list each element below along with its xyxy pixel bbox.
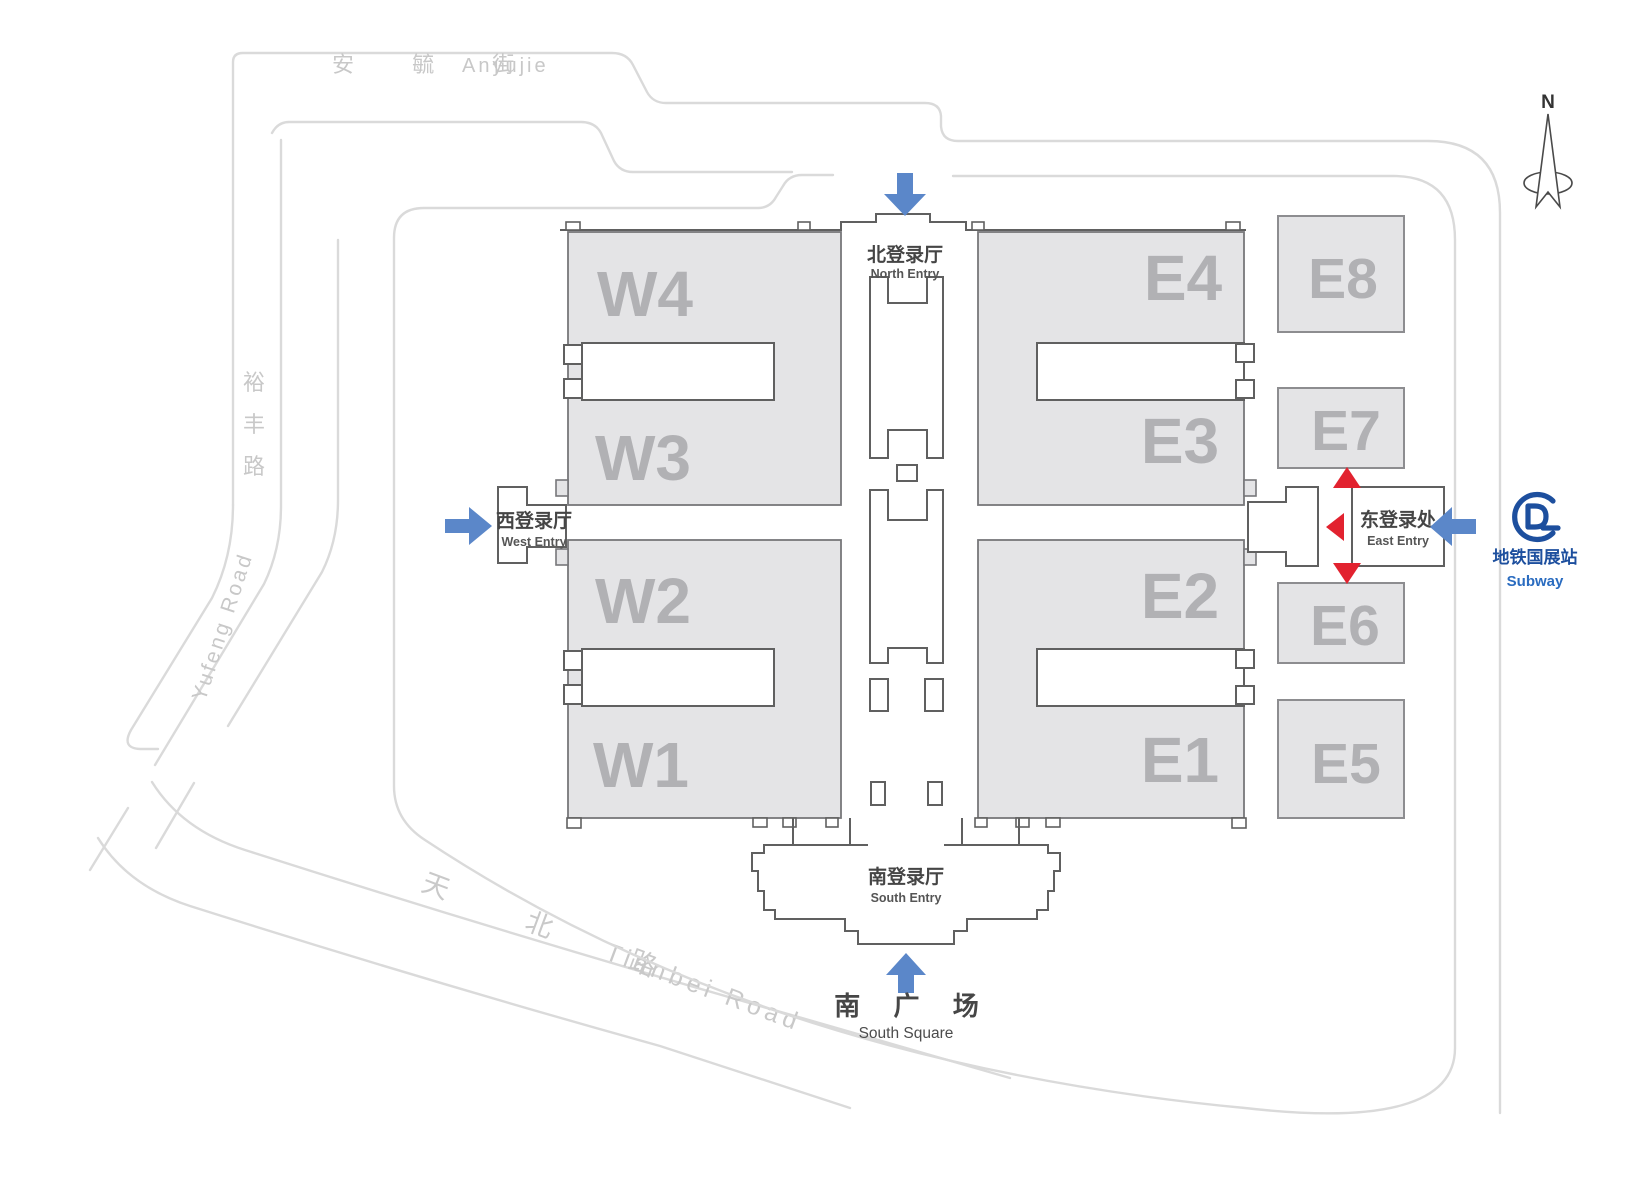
corridor-pillar bbox=[928, 782, 942, 805]
hall-block-w2-w1: W2 W1 bbox=[564, 540, 841, 818]
facade-detail bbox=[783, 818, 796, 827]
central-corridor bbox=[870, 277, 943, 805]
road-label-yufeng-zh2: 丰 bbox=[243, 412, 291, 437]
hall-label-e4: E4 bbox=[1144, 242, 1223, 314]
south-square-arrow-icon bbox=[886, 953, 926, 993]
facade-detail bbox=[566, 222, 580, 230]
west-entry-label-zh: 西登录厅 bbox=[496, 509, 572, 532]
red-arrow-down-icon bbox=[1333, 563, 1361, 584]
hall-label-w1: W1 bbox=[593, 729, 689, 801]
site-map: 安 毓 街 Anyujie 裕 丰 路 Yufeng Road 天 北 路 Ti… bbox=[0, 0, 1643, 1181]
hall-block-e2-e1: E2 E1 bbox=[978, 540, 1254, 818]
red-arrow-left-icon bbox=[1326, 513, 1344, 541]
corridor-structure-south bbox=[870, 490, 943, 663]
hall-label-w4: W4 bbox=[597, 258, 693, 330]
hall-e6: E6 bbox=[1278, 583, 1404, 663]
east-connector-building bbox=[1248, 487, 1318, 566]
facade-detail bbox=[1016, 818, 1029, 827]
south-entry: 南登录厅 South Entry bbox=[752, 818, 1060, 944]
compass: N bbox=[1524, 92, 1572, 207]
east-entry: 东登录处 East Entry bbox=[1248, 487, 1444, 566]
hall-label-e7: E7 bbox=[1311, 399, 1381, 463]
east-entry-label-zh: 东登录处 bbox=[1360, 508, 1437, 531]
facade-detail bbox=[975, 818, 987, 827]
south-entry-label-zh: 南登录厅 bbox=[868, 865, 944, 888]
hall-label-w3: W3 bbox=[595, 422, 691, 494]
red-arrow-up-icon bbox=[1333, 467, 1361, 488]
facade-detail bbox=[798, 222, 810, 230]
north-entry-arrow-icon bbox=[884, 173, 926, 216]
subway-label-zh: 地铁国展站 bbox=[1493, 547, 1578, 567]
west-entry-label-en: West Entry bbox=[501, 535, 566, 549]
south-entry-label-en: South Entry bbox=[871, 891, 942, 905]
corridor-pillar bbox=[925, 679, 943, 711]
road-label-anyujie-en: Anyujie bbox=[462, 55, 549, 77]
corridor-pillar bbox=[870, 679, 888, 711]
facade-detail bbox=[556, 549, 568, 565]
road-yufeng-east-line bbox=[156, 240, 338, 848]
facade-detail bbox=[1232, 818, 1246, 828]
north-entry-label-zh: 北登录厅 bbox=[867, 243, 943, 266]
hall-label-e3: E3 bbox=[1141, 405, 1219, 477]
road-tianbei-lower-line bbox=[98, 838, 850, 1108]
hall-block-w4-w3: W4 W3 bbox=[564, 232, 841, 505]
facade-detail bbox=[556, 480, 568, 496]
road-label-yufeng-zh1: 裕 bbox=[243, 370, 291, 395]
facade-detail bbox=[753, 818, 767, 827]
corridor-pillar bbox=[871, 782, 885, 805]
hall-label-e1: E1 bbox=[1141, 724, 1219, 796]
subway-station: 地铁国展站 Subway bbox=[1493, 495, 1578, 591]
hall-label-e8: E8 bbox=[1308, 247, 1378, 311]
corridor-structure-north bbox=[870, 277, 943, 458]
facade-detail bbox=[1226, 222, 1240, 230]
south-square-label-zh: 南 广 场 bbox=[834, 991, 991, 1021]
hall-e5: E5 bbox=[1278, 700, 1404, 818]
west-entry-arrow-icon bbox=[445, 507, 492, 545]
building-top-edge bbox=[560, 214, 1246, 230]
south-square-label-en: South Square bbox=[859, 1025, 954, 1042]
hall-label-e2: E2 bbox=[1141, 560, 1219, 632]
road-label-yufeng-zh3: 路 bbox=[243, 454, 291, 479]
facade-detail bbox=[567, 818, 581, 828]
compass-n-label: N bbox=[1541, 92, 1555, 113]
hall-e7: E7 bbox=[1278, 388, 1404, 468]
north-entry-label-en: North Entry bbox=[871, 267, 940, 281]
hall-label-e6: E6 bbox=[1310, 594, 1380, 658]
road-anyujie-inner-line bbox=[272, 122, 792, 172]
hall-e8: E8 bbox=[1278, 216, 1404, 332]
north-entry: 北登录厅 North Entry bbox=[867, 243, 943, 281]
subway-logo-icon bbox=[1515, 495, 1558, 540]
facade-detail bbox=[1046, 818, 1060, 827]
road-yufeng-west-line bbox=[90, 140, 281, 870]
hall-label-w2: W2 bbox=[595, 565, 691, 637]
facade-detail bbox=[826, 818, 838, 827]
corridor-structure-center bbox=[897, 465, 917, 481]
south-square: 南 广 场 South Square bbox=[834, 991, 991, 1042]
subway-label-en: Subway bbox=[1507, 573, 1564, 590]
hall-label-e5: E5 bbox=[1311, 732, 1381, 796]
hall-block-e4-e3: E4 E3 bbox=[978, 232, 1254, 505]
facade-detail bbox=[972, 222, 984, 230]
facade-detail bbox=[1244, 480, 1256, 496]
compass-needle-icon bbox=[1536, 114, 1560, 207]
east-entry-label-en: East Entry bbox=[1367, 534, 1429, 548]
